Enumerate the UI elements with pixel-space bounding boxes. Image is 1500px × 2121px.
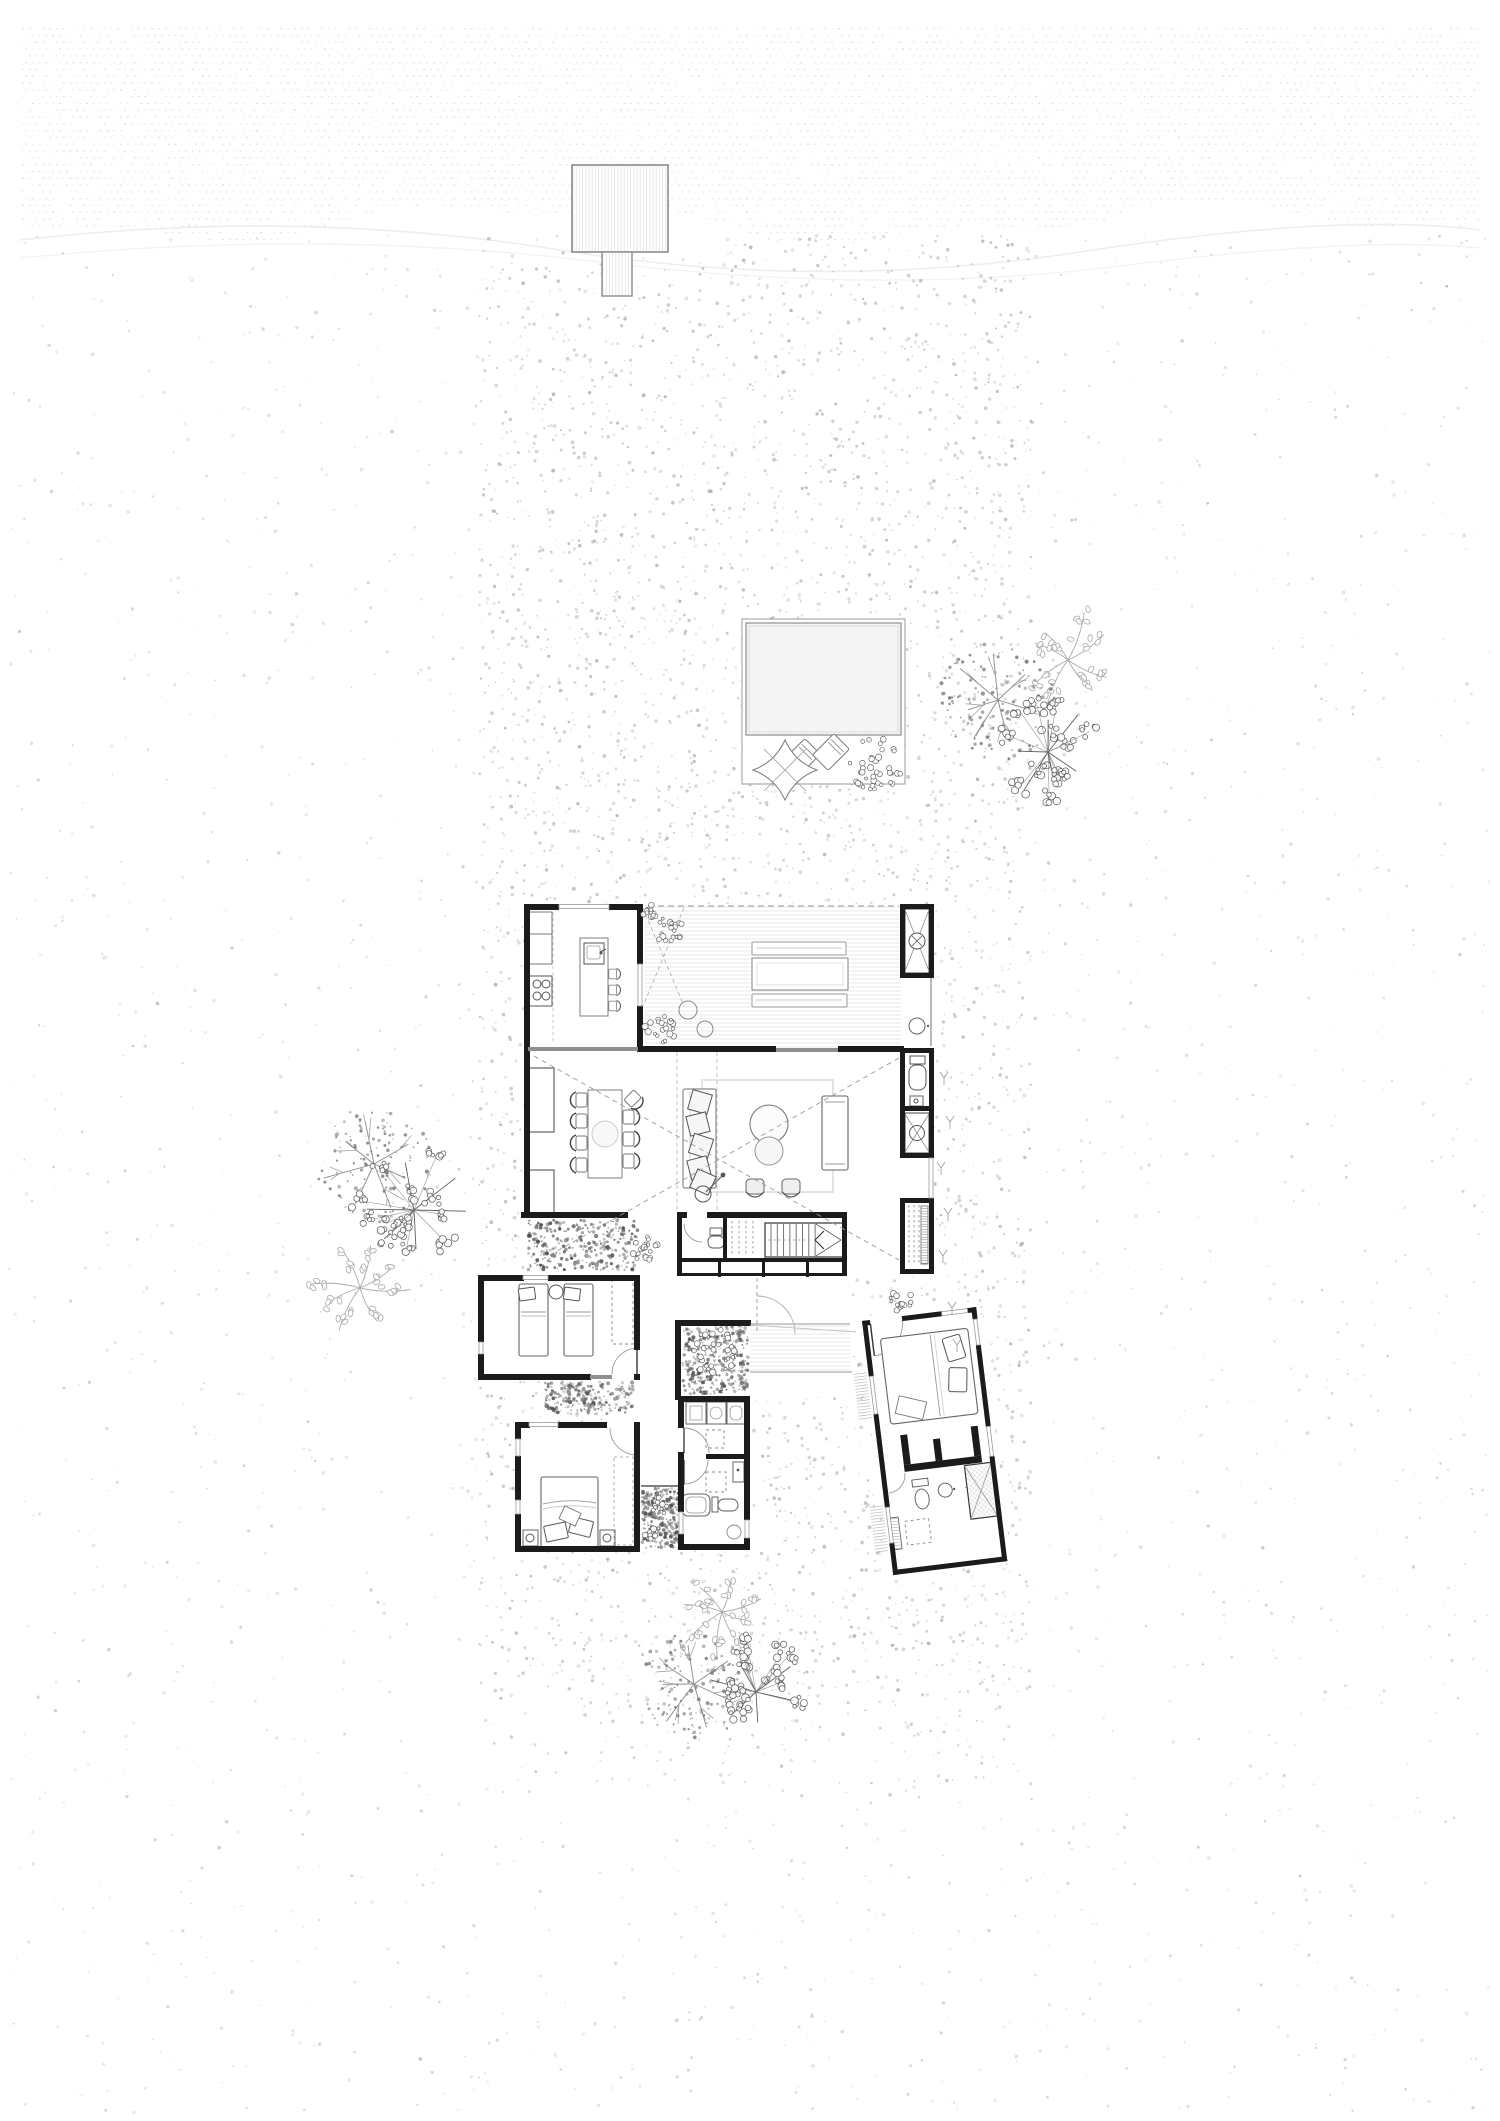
dot-tree bbox=[940, 643, 1056, 760]
master-wing bbox=[843, 1291, 1102, 1578]
loop-tree bbox=[1028, 605, 1108, 703]
loop-tree bbox=[306, 1246, 410, 1331]
bubble-tree bbox=[998, 696, 1099, 806]
layer-garage-building bbox=[572, 165, 668, 296]
site-plan-drawing bbox=[0, 0, 1500, 2121]
site-plan-page bbox=[0, 0, 1500, 2121]
bubble-tree bbox=[710, 1632, 807, 1723]
